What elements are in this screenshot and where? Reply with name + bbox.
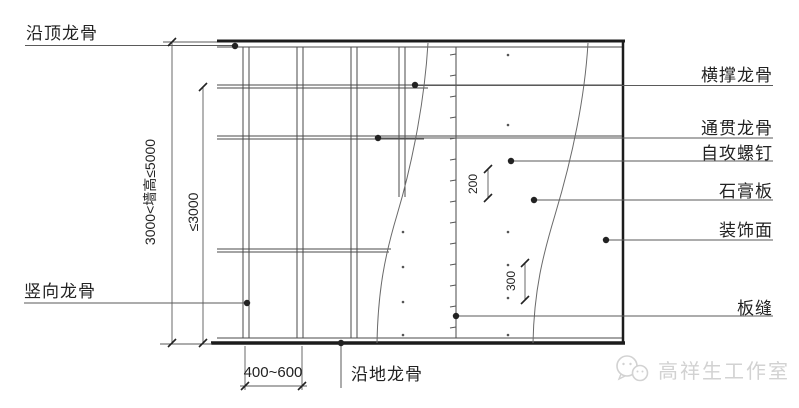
wechat-bubbles-icon xyxy=(612,352,652,386)
wall-height-dimension: 3000<墙高≤5000 xyxy=(140,139,160,245)
decorative-face-label: 装饰面 xyxy=(719,216,773,241)
runner-height-dimension: ≤3000 xyxy=(185,193,201,232)
gypsum-board-label: 石膏板 xyxy=(719,177,773,202)
floor-track-label: 沿地龙骨 xyxy=(351,360,423,385)
top-track-lines xyxy=(217,41,625,47)
vertical-stud-label: 竖向龙骨 xyxy=(24,277,96,302)
vertical-studs xyxy=(243,47,405,338)
board-seam-label: 板缝 xyxy=(737,294,773,319)
self-tapping-screw-label: 自攻螺钉 xyxy=(701,139,773,164)
watermark-text: 高祥生工作室 xyxy=(658,355,790,384)
seam-screw-ticks xyxy=(450,54,456,328)
horizontal-runners xyxy=(217,85,622,252)
stud-spacing-dimension: 400~600 xyxy=(238,364,308,381)
screw-spacing-edge-dimension: 200 xyxy=(466,174,480,194)
through-runner-label: 通贯龙骨 xyxy=(701,114,773,139)
studio-watermark: 高祥生工作室 xyxy=(612,352,790,386)
screw-spacing-field-dimension: 300 xyxy=(504,271,518,291)
cross-brace-label: 横撑龙骨 xyxy=(701,61,773,86)
top-track-label: 沿顶龙骨 xyxy=(26,19,98,44)
dimension-ticks xyxy=(168,38,529,390)
bottom-track-lines xyxy=(211,338,625,343)
construction-linework xyxy=(0,0,799,408)
drawing-canvas: 沿顶龙骨 竖向龙骨 横撑龙骨 通贯龙骨 自攻螺钉 石膏板 装饰面 板缝 沿地龙骨… xyxy=(0,0,799,408)
